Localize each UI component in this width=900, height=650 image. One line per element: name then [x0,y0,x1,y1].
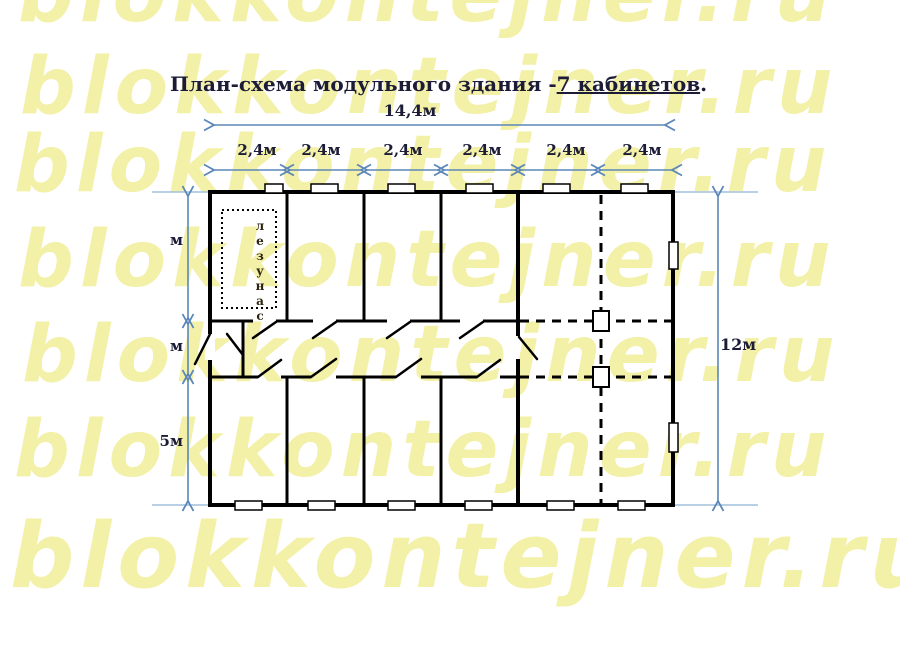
window-right [669,423,678,452]
title-prefix: План-схема модульного здания - [170,72,557,96]
window-bottom [308,501,335,510]
window-top [543,184,570,193]
top-row-partitions [287,192,441,321]
building-walls [210,192,673,505]
dimension-lines [188,125,718,501]
dim-left-label: 5м [149,432,183,450]
floor-plan-svg [0,0,900,650]
bathroom-box [222,210,276,308]
window-bottom [235,501,262,510]
window-right [669,242,678,269]
door-swings [195,322,537,377]
bottom-room-doors [258,359,500,377]
bottom-row-partitions [287,377,441,505]
dim-left-label: м [149,231,183,249]
plan-canvas: blokkontejner.ru blokkontejner.ru blokko… [0,0,900,650]
window-bottom [465,501,492,510]
dashed-partitions [520,195,671,503]
dim-module-label: 2,4м [227,141,287,159]
dim-right-label: 12м [720,335,756,354]
window-top [388,184,415,193]
window-top [265,184,283,193]
window-top [311,184,338,193]
title-underline: 7 кабинетов [557,72,700,96]
dim-left-label: м [149,337,183,355]
dim-module-label: 2,4м [373,141,433,159]
dim-module-label: 2,4м [612,141,672,159]
window-bottom [388,501,415,510]
page-title: План-схема модульного здания -7 кабинето… [170,72,707,96]
vestibule-door [227,334,243,355]
dim-total-width-label: 14,4м [360,101,460,120]
window-bottom [618,501,645,510]
window-top [466,184,493,193]
title-suffix: . [700,72,707,96]
window-top [621,184,648,193]
dim-module-label: 2,4м [291,141,351,159]
top-room-doors [253,322,483,338]
windows [235,184,678,510]
dim-module-label: 2,4м [536,141,596,159]
window-bottom [547,501,574,510]
partition-nodes [593,311,609,387]
dim-module-label: 2,4м [452,141,512,159]
entrance-gap [205,334,215,360]
bathroom-label: лезунас [253,219,267,324]
central-door [519,337,537,359]
